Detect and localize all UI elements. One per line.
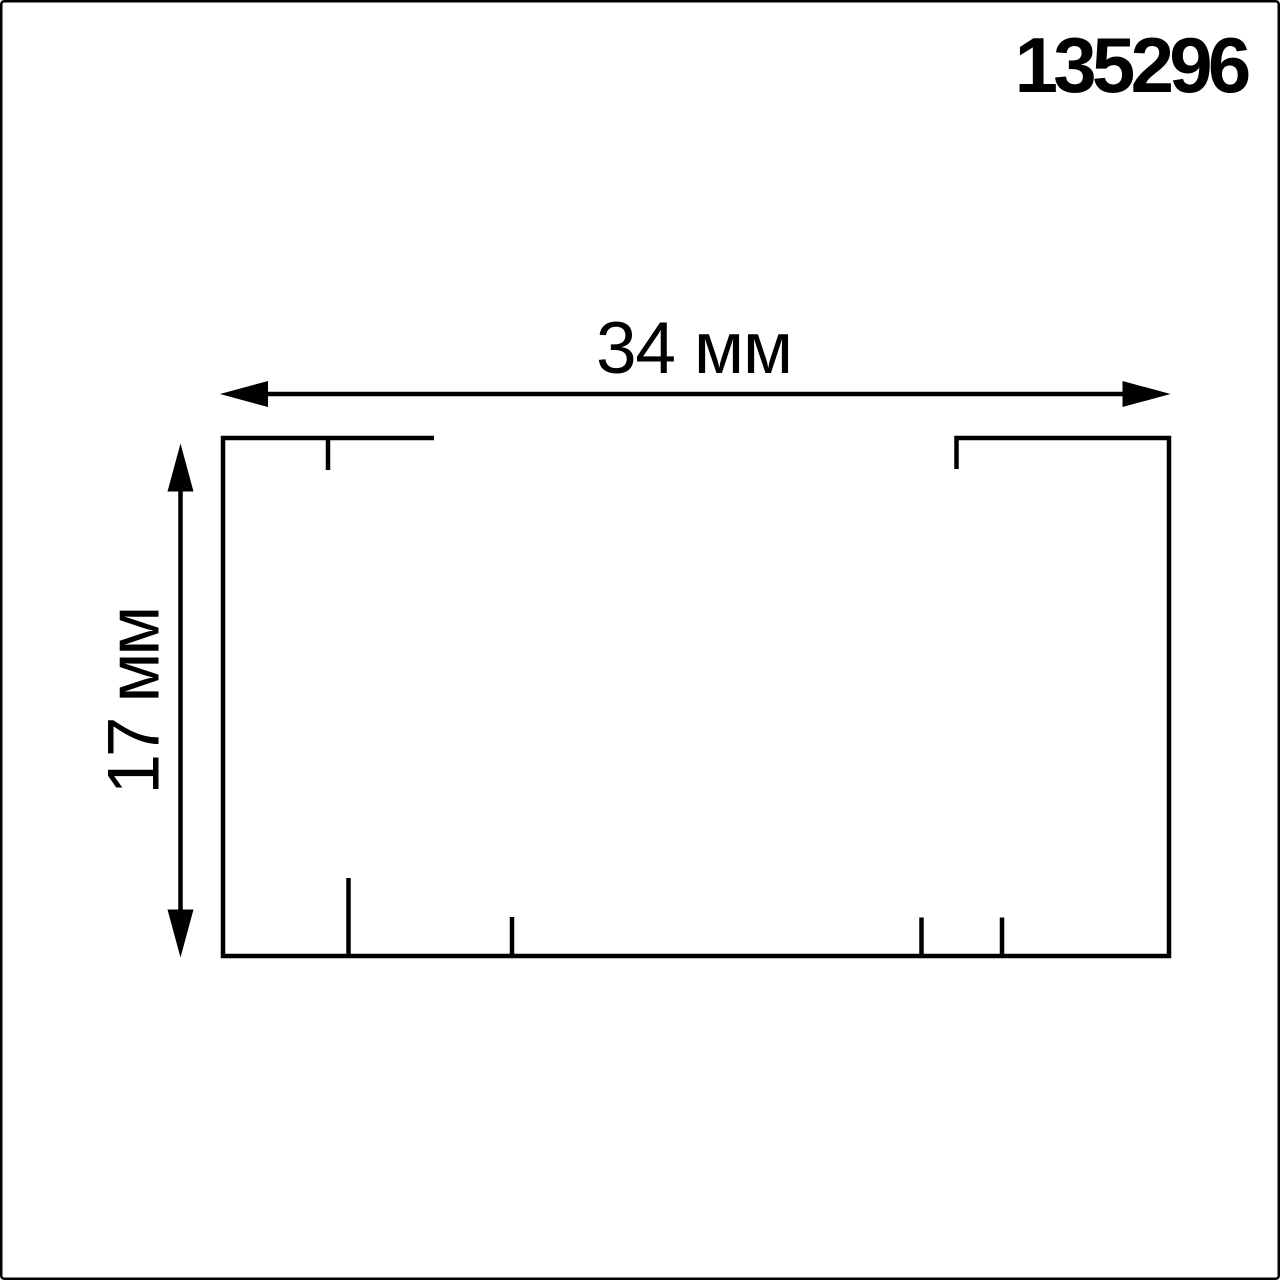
svg-text:34 мм: 34 мм xyxy=(596,308,793,389)
svg-text:135296: 135296 xyxy=(1015,21,1252,109)
svg-text:17 мм: 17 мм xyxy=(94,606,175,795)
